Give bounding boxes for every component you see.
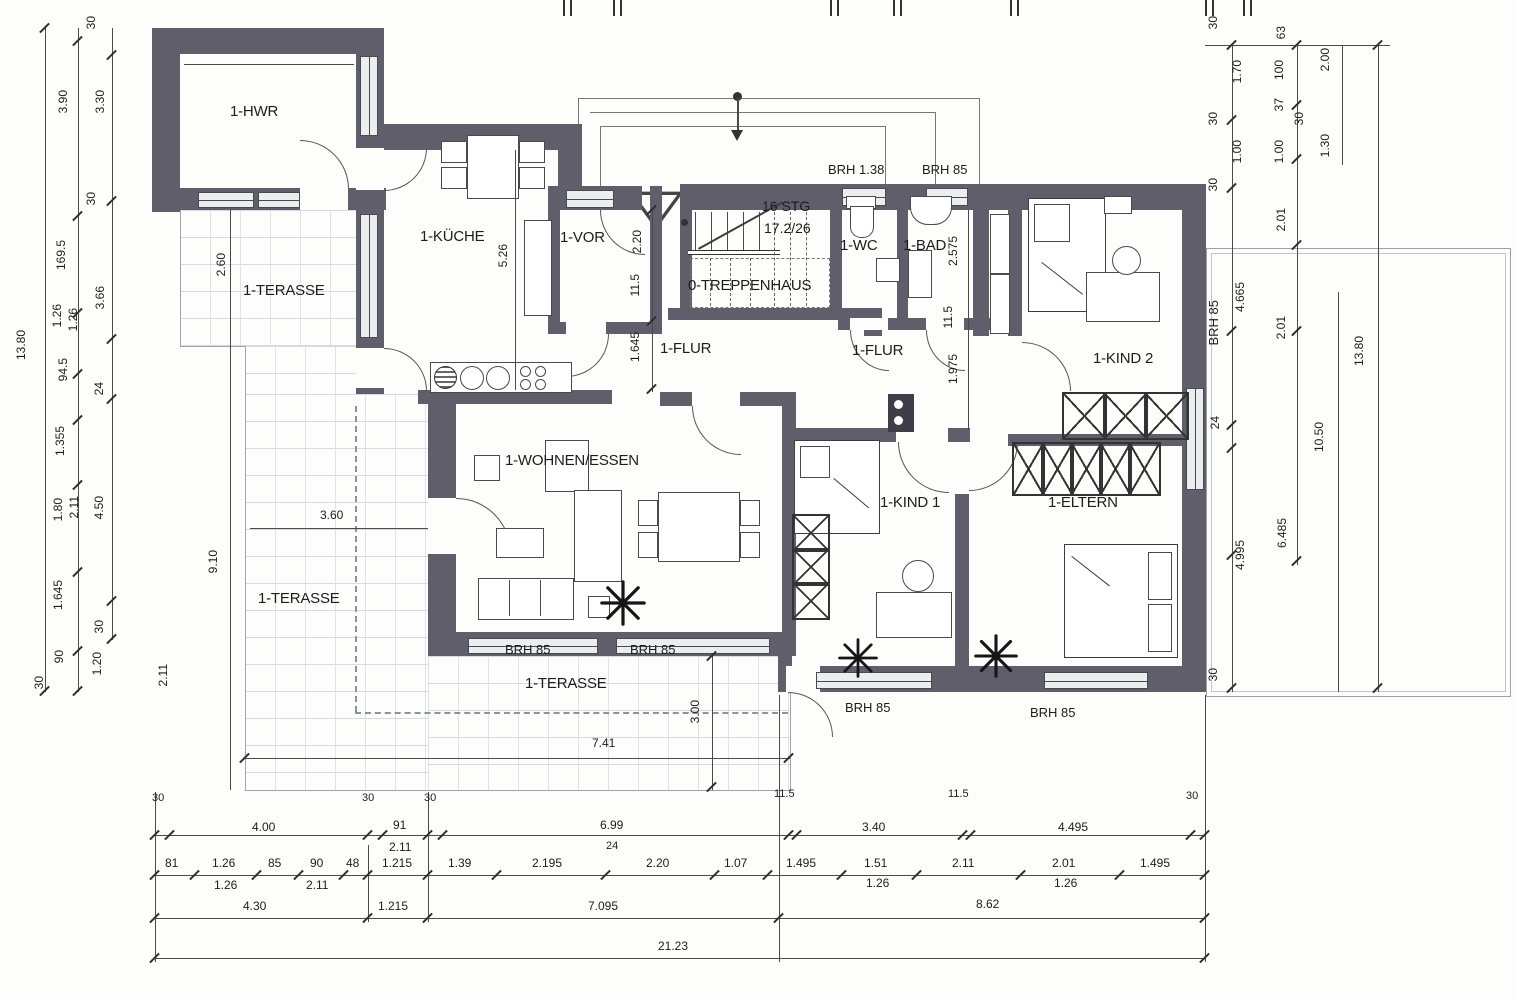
- window: [360, 56, 378, 136]
- wardrobe-icon: [1103, 392, 1148, 440]
- entrance-arrow-head-icon: [731, 130, 743, 141]
- dim-label: 2.11: [389, 840, 411, 854]
- dim-label: 30: [152, 792, 164, 804]
- dining-table: [658, 492, 740, 562]
- stove-burner-icon: [535, 379, 546, 390]
- shaft-vent-icon: [894, 416, 903, 425]
- niche-shelf: [990, 274, 1010, 334]
- kitchen-basin-icon: [486, 366, 510, 390]
- dim-label: 1.975: [946, 354, 960, 384]
- dim-label: 11.5: [774, 788, 795, 800]
- kitchen-cabinet: [524, 220, 552, 316]
- section-mark: [1205, 0, 1214, 16]
- chair: [902, 560, 934, 592]
- dim-line: [250, 528, 428, 529]
- dim-line: [230, 346, 231, 790]
- dim-label: 3.60: [320, 508, 343, 522]
- wall: [973, 186, 989, 336]
- dim-line: [230, 210, 231, 346]
- dim-label: 85: [268, 856, 281, 870]
- dim-line: [45, 28, 46, 692]
- section-mark: [830, 0, 839, 16]
- dim-line: [1342, 45, 1343, 165]
- door-arc: [692, 406, 741, 455]
- dim-label: 30: [1206, 16, 1220, 29]
- room-label-treppenhaus: 0-TREPPENHAUS: [688, 277, 811, 294]
- dim-label: 7.095: [588, 899, 618, 913]
- section-mark: [893, 0, 902, 16]
- dim-label: 2.20: [630, 230, 644, 253]
- dim-label: 1.39: [448, 856, 471, 870]
- door-opening: [850, 318, 888, 330]
- brh-label: BRH 85: [922, 162, 968, 177]
- dim-label: 1.495: [786, 856, 816, 870]
- door-arc: [788, 692, 833, 737]
- dim-label: 4.495: [1058, 820, 1088, 834]
- desk: [1086, 272, 1160, 322]
- pillow: [1148, 552, 1172, 600]
- dim-line: [155, 918, 1206, 919]
- dim-label: 63: [1274, 26, 1288, 39]
- dim-label: 4.665: [1233, 282, 1247, 312]
- dim-label: 3.66: [93, 286, 107, 309]
- dim-label: 2.60: [214, 253, 228, 276]
- dim-label: 30: [1206, 668, 1220, 681]
- chair: [638, 532, 658, 558]
- dim-line: [78, 28, 79, 692]
- sofa-divider: [540, 580, 541, 616]
- dim-label: 1.20: [90, 652, 104, 675]
- sofa: [478, 578, 574, 620]
- chair: [740, 532, 760, 558]
- porch-line: [578, 98, 980, 99]
- dim-label: 94.5: [56, 358, 70, 381]
- chair: [519, 167, 545, 189]
- wall: [1008, 210, 1022, 336]
- dim-label: 2.20: [646, 856, 669, 870]
- plant-icon: [974, 634, 1018, 678]
- window: [360, 214, 378, 338]
- dim-label: 5.26: [496, 244, 510, 267]
- sofa-element: [574, 490, 622, 582]
- dim-label: 11.5: [628, 274, 642, 296]
- room-label-hwr: 1-HWR: [230, 103, 278, 120]
- chair: [519, 141, 545, 163]
- stair-walkline-dot: [681, 219, 688, 226]
- floor-plan: 1-HWR 1-KÜCHE 1-VOR 0-TREPPENHAUS 1-WC 1…: [0, 0, 1515, 1000]
- dim-label: 11.5: [948, 788, 969, 800]
- wall: [778, 632, 792, 668]
- dim-line: [1338, 292, 1339, 692]
- room-label-flur: 1-FLUR: [660, 340, 711, 357]
- stair-landing-edge: [688, 250, 780, 255]
- dim-label: 1.215: [378, 899, 408, 913]
- dim-label: 1.645: [628, 332, 642, 362]
- dim-label: 13.80: [14, 330, 28, 360]
- terrace-boundary: [180, 210, 181, 346]
- door-arc: [384, 348, 427, 391]
- terrace-paving: [180, 210, 356, 346]
- wardrobe-icon: [1062, 392, 1107, 440]
- entrance-arrow-line: [737, 98, 739, 130]
- dim-label: 1.00: [1230, 140, 1244, 163]
- door-opening: [300, 188, 348, 210]
- chair: [441, 141, 467, 163]
- brh-label: BRH 85: [845, 700, 891, 715]
- door-opening: [566, 322, 606, 334]
- stair-tread: [743, 212, 744, 252]
- dim-label: 1.07: [724, 856, 747, 870]
- dim-label: 30: [32, 676, 46, 689]
- section-mark: [563, 0, 572, 16]
- dim-label: 30: [424, 792, 436, 804]
- hwr-shelf: [184, 64, 354, 65]
- dim-label: 2.01: [1274, 208, 1288, 231]
- dim-label: 2.575: [946, 236, 960, 266]
- stove-burner-icon: [535, 366, 546, 377]
- dim-label: 1.215: [382, 856, 412, 870]
- side-table: [474, 455, 500, 481]
- room-label-kind1: 1-KIND 1: [880, 494, 940, 511]
- door-opening: [356, 148, 384, 190]
- room-label-vor: 1-VOR: [560, 229, 605, 246]
- shaft-vent-icon: [894, 400, 903, 409]
- dim-label: 30: [92, 620, 106, 633]
- porch-line: [979, 98, 980, 188]
- room-label-wohnen: 1-WOHNEN/ESSEN: [505, 452, 639, 469]
- kitchen-sink-icon: [434, 366, 457, 389]
- plant-icon: [838, 638, 878, 678]
- dim-label: 1.26: [1054, 876, 1077, 890]
- wardrobe-icon: [1128, 442, 1161, 496]
- dim-line: [712, 656, 713, 790]
- dim-line: [155, 835, 1206, 836]
- dim-line: [155, 958, 1206, 959]
- sofa-divider: [509, 580, 510, 616]
- dim-label: 7.41: [592, 736, 615, 750]
- dim-label: 8.62: [976, 897, 999, 911]
- dim-label: 2.11: [67, 496, 81, 518]
- chair: [1112, 246, 1141, 275]
- pillow: [1148, 604, 1172, 652]
- dim-line: [652, 210, 653, 392]
- wardrobe-icon: [1144, 392, 1189, 440]
- brh-label: BRH 1.38: [828, 162, 884, 177]
- niche-shelf: [990, 214, 1010, 274]
- dim-label: 30: [1292, 112, 1306, 125]
- dim-label: 2.01: [1052, 856, 1075, 870]
- chair: [441, 167, 467, 189]
- dim-label: 1.26: [212, 856, 235, 870]
- dim-label: 24: [606, 840, 618, 852]
- dim-label: 24: [1208, 416, 1222, 429]
- section-mark: [1010, 0, 1019, 16]
- window: [258, 192, 300, 208]
- dim-label: 1.80: [51, 498, 65, 521]
- dim-extension: [155, 792, 156, 962]
- room-label-kueche: 1-KÜCHE: [420, 228, 484, 245]
- dim-label: 3.40: [862, 820, 885, 834]
- dim-label: 90: [310, 856, 323, 870]
- door-opening: [786, 666, 820, 692]
- terrace-boundary: [245, 346, 246, 790]
- brh-label: BRH 85: [1206, 300, 1221, 346]
- dim-label: 1.645: [51, 580, 65, 610]
- pillow: [1034, 204, 1070, 242]
- dim-label: 30: [1186, 790, 1198, 802]
- dim-line: [245, 758, 790, 759]
- section-mark: [1243, 0, 1252, 16]
- dim-label: 4.30: [243, 899, 266, 913]
- dim-label: 2.195: [532, 856, 562, 870]
- door-opening: [692, 392, 740, 406]
- dim-label: 100: [1272, 60, 1286, 80]
- bad-sink-icon: [910, 196, 952, 225]
- room-label-bad: 1-BAD: [903, 237, 946, 254]
- plant-icon: [600, 580, 646, 626]
- dim-label: 4.00: [252, 820, 275, 834]
- nightstand: [1104, 196, 1132, 214]
- brh-label: BRH 85: [630, 642, 676, 657]
- dim-extension: [368, 845, 369, 922]
- door-arc: [384, 148, 427, 191]
- dim-line: [515, 150, 516, 390]
- room-label-terrasse: 1-TERASSE: [243, 282, 325, 299]
- dim-label: 1.51: [864, 856, 887, 870]
- pillow: [800, 446, 830, 478]
- dim-label: 2.11: [156, 664, 170, 686]
- wardrobe-icon: [792, 582, 830, 620]
- dim-label: 6.99: [600, 818, 623, 832]
- window: [1044, 672, 1148, 689]
- porch-line: [885, 126, 886, 188]
- room-label-flur: 1-FLUR: [852, 342, 903, 359]
- dim-label: 30: [84, 16, 98, 29]
- door-opening: [428, 498, 456, 554]
- dim-label: 1.00: [1272, 140, 1286, 163]
- dim-line: [968, 210, 969, 430]
- porch-line: [600, 126, 601, 186]
- door-arc: [300, 140, 349, 189]
- kitchen-basin-icon: [460, 366, 484, 390]
- dim-label: 11.5: [941, 306, 955, 328]
- dim-label: 30: [362, 792, 374, 804]
- dim-label: 9.10: [206, 550, 220, 573]
- dim-line: [1378, 45, 1379, 692]
- shaft: [888, 394, 914, 432]
- wardrobe-icon: [792, 548, 830, 586]
- stove-burner-icon: [520, 379, 531, 390]
- porch-line: [590, 112, 936, 113]
- kitchen-table: [467, 135, 519, 199]
- dim-label: 30: [1206, 112, 1220, 125]
- porch-line: [600, 126, 886, 127]
- chair: [740, 500, 760, 526]
- overhang-dashed-line: [355, 712, 788, 714]
- terrace-paving: [428, 656, 790, 790]
- door-arc: [969, 442, 1018, 491]
- dim-extension: [779, 695, 780, 962]
- dim-label: 81: [165, 856, 178, 870]
- door-opening: [955, 442, 969, 494]
- dim-label: 1.26: [50, 304, 64, 327]
- overhang-dashed-line: [355, 406, 357, 712]
- stair-tread: [695, 212, 696, 252]
- stair-tread: [759, 212, 760, 252]
- dim-label: 91: [393, 818, 406, 832]
- dim-label: 30: [84, 192, 98, 205]
- brh-label: BRH 85: [1030, 705, 1076, 720]
- dim-extension: [1205, 695, 1206, 962]
- dim-label: 1.355: [53, 426, 67, 456]
- toilet-icon: [850, 206, 874, 238]
- bad-fixture: [908, 250, 932, 298]
- dim-label: 10.50: [1312, 422, 1326, 452]
- dim-label: 1.26: [66, 308, 80, 331]
- room-label-kind2: 1-KIND 2: [1093, 350, 1153, 367]
- door-arc: [1022, 342, 1071, 391]
- wall: [152, 28, 384, 54]
- dim-label: 37: [1272, 98, 1286, 111]
- dim-label: 30: [1206, 178, 1220, 191]
- wardrobe-icon: [792, 514, 830, 552]
- dim-label: 3.30: [93, 90, 107, 113]
- dim-label: 3.90: [56, 90, 70, 113]
- dim-label: 1.70: [1230, 60, 1244, 83]
- dim-extension: [428, 792, 429, 922]
- brh-label: BRH 85: [505, 642, 551, 657]
- stair-tread: [711, 212, 712, 252]
- door-arc: [898, 442, 949, 493]
- dim-label: 2.11: [306, 878, 328, 892]
- dim-label: 21.23: [658, 939, 688, 953]
- dim-label: 2.00: [1318, 48, 1332, 71]
- dim-label: 48: [346, 856, 359, 870]
- window: [198, 192, 254, 208]
- desk: [876, 592, 952, 638]
- section-mark: [613, 0, 622, 16]
- dim-label: 2.11: [952, 856, 974, 870]
- wall: [152, 28, 180, 212]
- dim-label: 1.495: [1140, 856, 1170, 870]
- window: [566, 190, 614, 208]
- dim-label: 13.80: [1352, 336, 1366, 366]
- dim-label: 1.26: [214, 878, 237, 892]
- room-label-eltern: 1-ELTERN: [1048, 494, 1118, 511]
- door-opening: [356, 348, 384, 388]
- dim-label: 3.00: [688, 700, 702, 723]
- dim-label: 90: [52, 650, 66, 663]
- coffee-table: [496, 528, 544, 558]
- garden-outline-inner: [1211, 253, 1506, 692]
- room-label-terrasse: 1-TERASSE: [258, 590, 340, 607]
- dim-label: 1.26: [866, 876, 889, 890]
- room-label-wc: 1-WC: [840, 237, 878, 254]
- dim-label: 1.30: [1318, 134, 1332, 157]
- terrace-boundary: [180, 346, 246, 347]
- dim-label: 4.995: [1233, 540, 1247, 570]
- dim-label: 2.01: [1274, 316, 1288, 339]
- wc-sink: [876, 258, 900, 282]
- dim-line: [155, 875, 1206, 876]
- chair: [638, 500, 658, 526]
- stove-burner-icon: [520, 366, 531, 377]
- stair-count-label: 16 STG: [762, 198, 810, 214]
- door-arc: [566, 334, 609, 377]
- dim-label: 4.50: [92, 496, 106, 519]
- stair-ratio-label: 17.2/26: [764, 220, 811, 236]
- room-label-terrasse: 1-TERASSE: [525, 675, 607, 692]
- porch-line: [578, 98, 579, 126]
- dim-label: 6.485: [1275, 518, 1289, 548]
- dim-label: 24: [92, 382, 106, 395]
- dim-label: 169.5: [54, 240, 68, 270]
- dim-line: [112, 28, 113, 640]
